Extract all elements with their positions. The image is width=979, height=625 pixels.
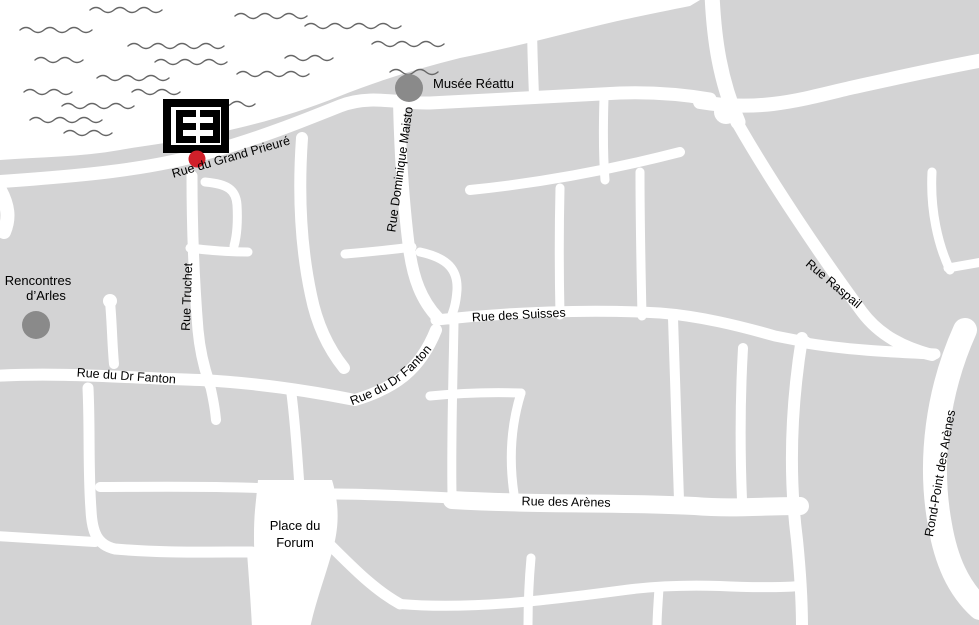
street-short-stub [110,302,114,364]
street-bottom-vertical-b [657,588,659,625]
street-mid-vertical-c [673,318,679,500]
street-bottom-vertical-a [528,558,531,625]
street-forum-east-horizontal [335,494,452,498]
label-rencontres-line1: Rencontres [5,273,72,288]
venue-logo-icon [163,99,229,153]
label-musee-reattu: Musée Réattu [433,76,514,91]
logo-glyph-e [176,110,196,143]
street-mid-vertical-d [741,348,743,500]
street-musee-vertical [532,20,534,96]
street-left-edge-wedge [0,190,7,232]
street-short-right-horizontal [948,262,979,268]
musee-reattu-dot [395,74,423,102]
street-truchet-south-stub [210,385,216,420]
logo-glyph-e-mirrored [200,110,220,143]
street-upper-mid-vertical-b [640,172,642,316]
street-truchet-loop-bottom [190,248,248,252]
street-mid-vertical-a [452,322,454,494]
label-place-du-forum-line2: Forum [276,535,314,550]
label-rue-truchet: Rue Truchet [179,262,195,331]
label-rencontres-line2: d’Arles [26,288,66,303]
street-left-bottom-horizontal [0,536,95,542]
street-rue-des-arenes [452,500,800,507]
street-upper-mid-vertical-a [559,188,560,315]
rencontres-arles-dot [22,311,50,339]
street-stub-head [103,294,117,308]
street-forum-west-horizontal [100,487,257,488]
street-upper-mid-vertical-c [603,98,605,180]
street-mid-horizontal [430,393,521,396]
label-place-du-forum-line1: Place du [270,518,321,533]
label-rue-des-arenes: Rue des Arènes [521,494,610,510]
arles-street-map: Musée Réattu Rencontres d’Arles Rue du G… [0,0,979,625]
